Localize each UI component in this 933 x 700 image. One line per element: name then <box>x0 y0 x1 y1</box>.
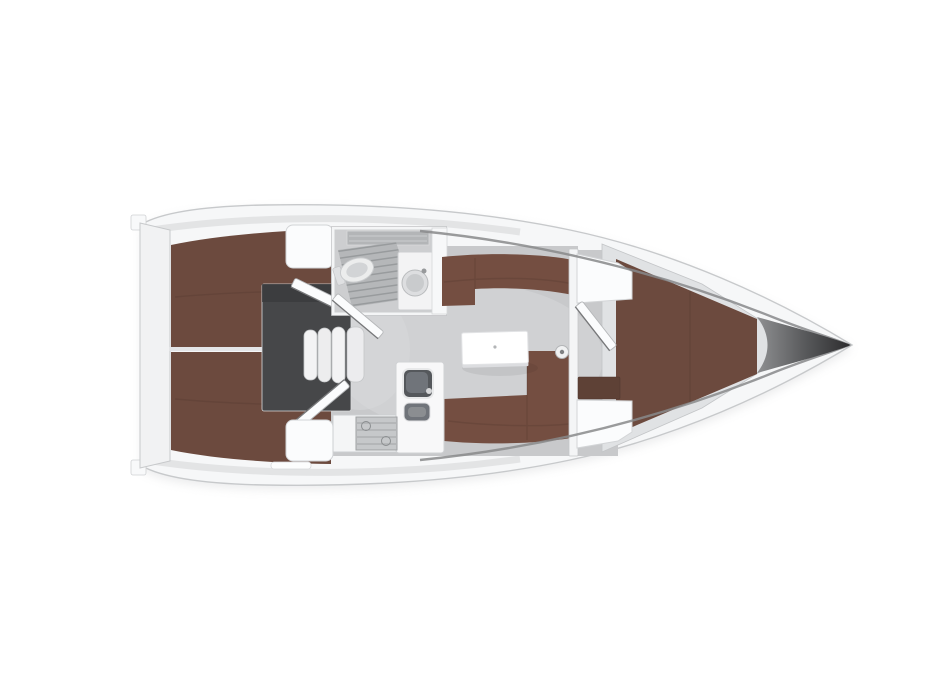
companionway-steps <box>304 327 364 383</box>
galley-stove <box>356 417 397 450</box>
deck-step-detail <box>271 462 311 469</box>
washbasin <box>398 252 433 310</box>
transom <box>131 215 170 475</box>
mast-post <box>556 346 569 359</box>
forward-cabin-bench <box>578 377 620 399</box>
yacht-floor-plan <box>0 0 933 700</box>
galley-sink <box>403 369 433 421</box>
floor-plan-drawing <box>0 0 933 700</box>
head-shelf <box>347 231 429 245</box>
saloon-table <box>462 331 529 368</box>
cockpit-locker-bottom <box>286 420 333 461</box>
cockpit-locker-top <box>286 225 333 268</box>
